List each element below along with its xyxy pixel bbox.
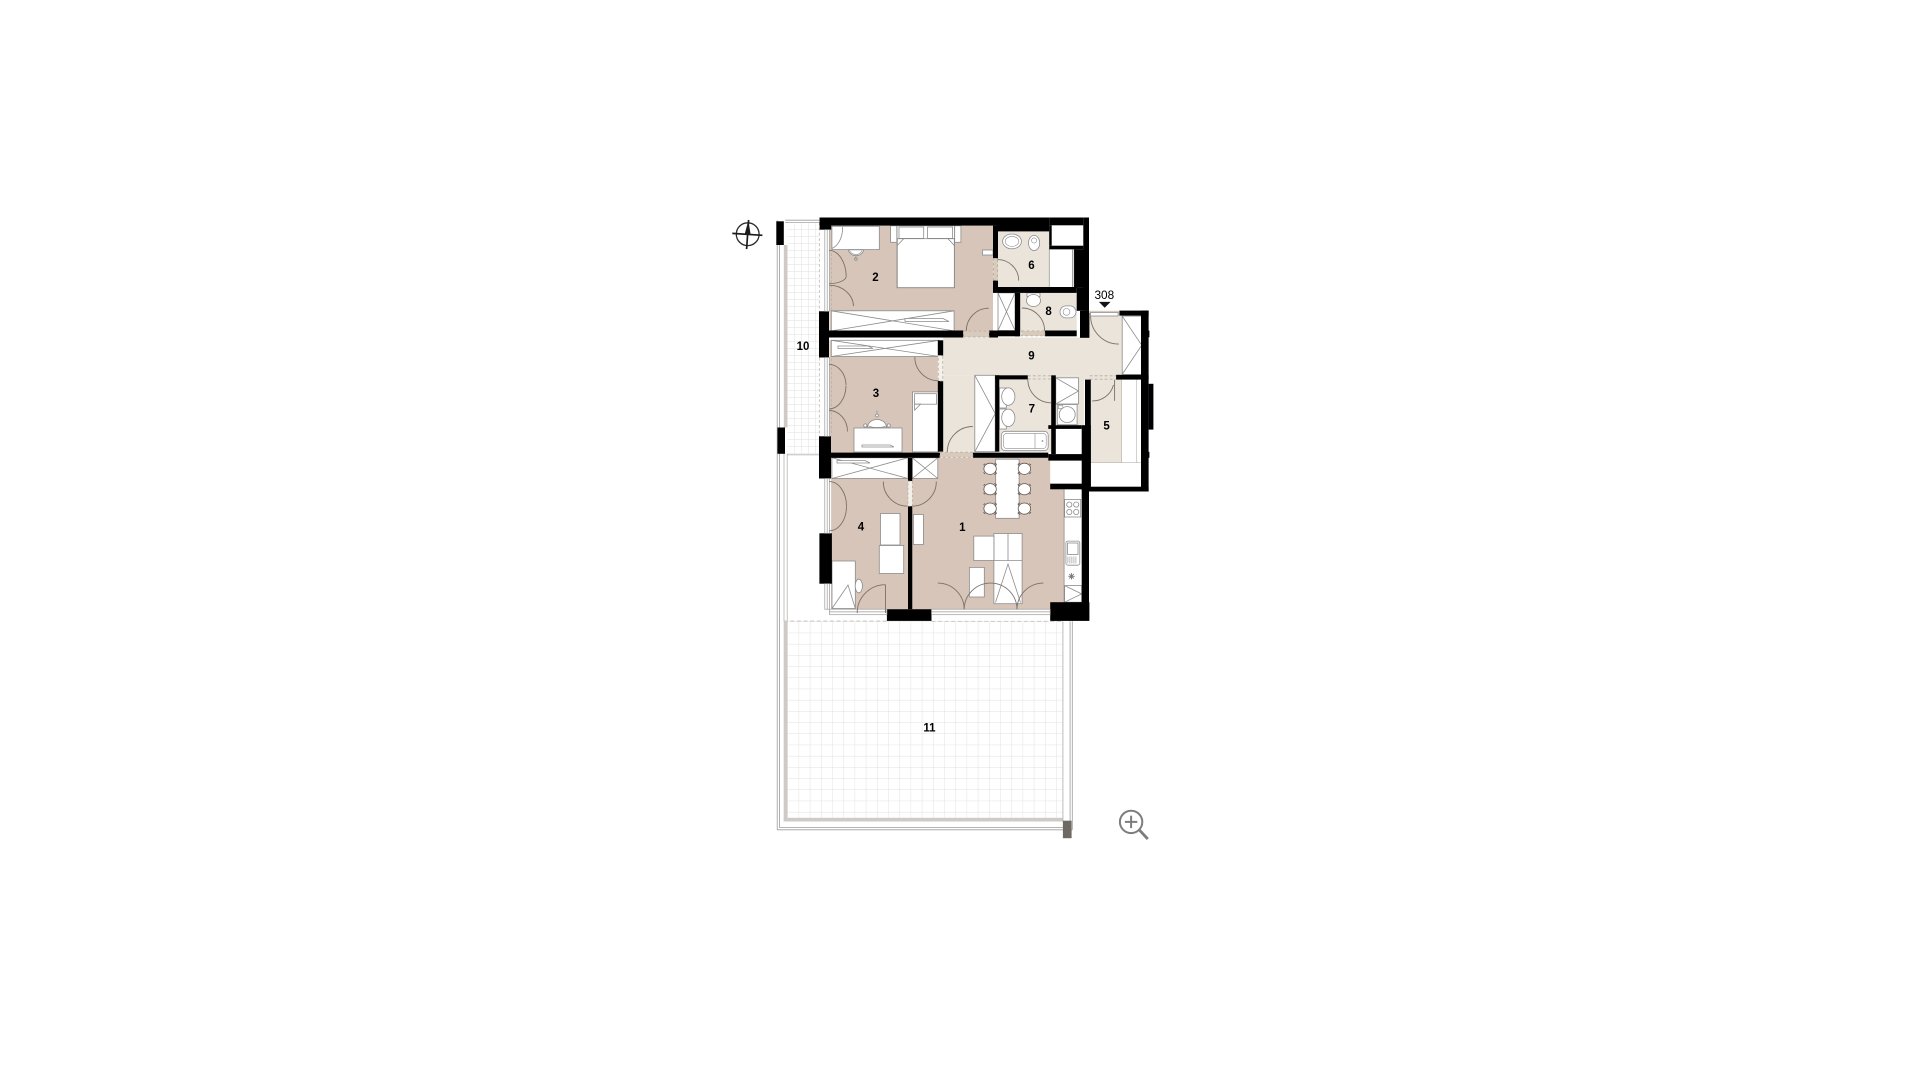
svg-text:8: 8	[1045, 306, 1052, 318]
svg-text:1: 1	[959, 522, 966, 534]
svg-text:5: 5	[1103, 421, 1110, 433]
svg-text:3: 3	[873, 388, 879, 400]
svg-text:2: 2	[872, 272, 878, 284]
svg-text:10: 10	[797, 341, 810, 353]
svg-text:9: 9	[1028, 351, 1034, 363]
svg-text:6: 6	[1028, 260, 1034, 272]
svg-text:7: 7	[1029, 404, 1035, 416]
svg-text:11: 11	[923, 723, 936, 735]
svg-text:4: 4	[858, 522, 865, 534]
svg-text:308: 308	[1094, 288, 1114, 302]
